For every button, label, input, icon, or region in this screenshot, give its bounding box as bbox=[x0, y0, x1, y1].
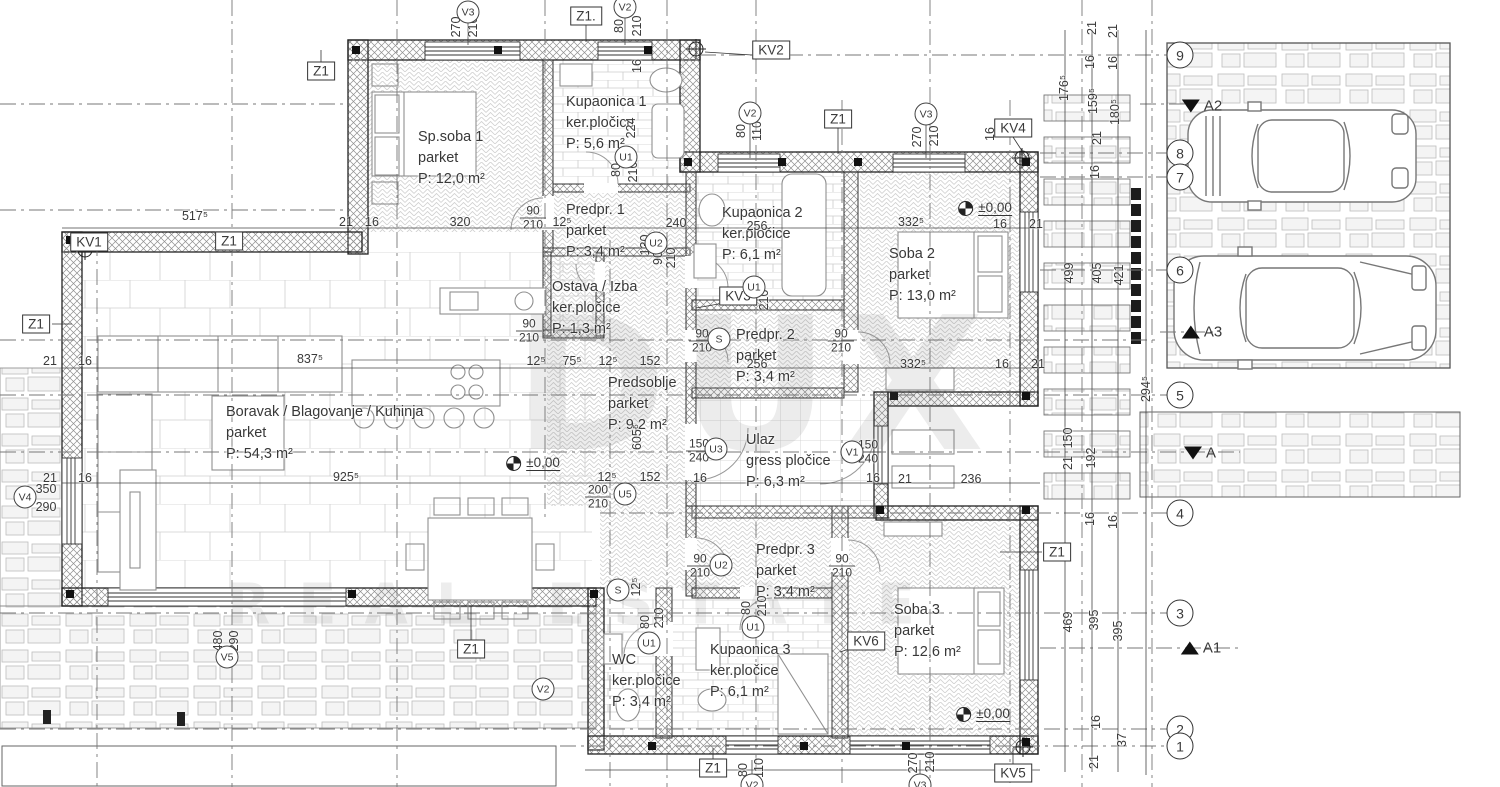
dimension-label: 16 bbox=[693, 471, 707, 485]
dimension-label-vertical: 80 bbox=[734, 124, 748, 138]
door-size-label: 90210 bbox=[828, 328, 854, 355]
opening-marker: V5 bbox=[216, 646, 239, 669]
dimension-label: 16 bbox=[995, 357, 1009, 371]
annotation-layer: Sp.soba 1parketP: 12,0 m²Kupaonica 1ker.… bbox=[0, 0, 1500, 787]
opening-marker: U3 bbox=[705, 438, 728, 461]
grid-axis-bubble: 9 bbox=[1167, 42, 1194, 69]
grid-axis-bubble: 8 bbox=[1167, 140, 1194, 167]
dimension-label: 16 bbox=[993, 217, 1007, 231]
room-area: P: 6,1 m² bbox=[722, 245, 803, 266]
dimension-label: 320 bbox=[450, 215, 471, 229]
dimension-label-vertical: 159⁵ bbox=[1086, 88, 1100, 114]
dimension-label-vertical: 80 bbox=[638, 615, 652, 629]
section-marker-a2: A2 bbox=[1182, 98, 1222, 115]
dimension-label: 236 bbox=[961, 472, 982, 486]
grid-axis-bubble: 1 bbox=[1167, 733, 1194, 760]
dimension-label: 332⁵ bbox=[900, 357, 926, 371]
opening-marker: U2 bbox=[710, 554, 733, 577]
level-marker: ±0,00 bbox=[956, 706, 1010, 722]
door-height: 210 bbox=[829, 567, 855, 580]
door-height: 210 bbox=[828, 342, 854, 355]
dimension-label-vertical: 21 bbox=[1090, 131, 1104, 145]
dimension-label-vertical: 210 bbox=[927, 126, 941, 147]
level-value: ±0,00 bbox=[978, 200, 1012, 216]
dimension-label-vertical: 16 bbox=[1088, 165, 1102, 179]
dimension-label: 16 bbox=[78, 471, 92, 485]
room-floor: gress pločice bbox=[746, 451, 831, 472]
room-name: Soba 2 bbox=[889, 244, 956, 265]
room-area: P: 12,0 m² bbox=[418, 169, 485, 190]
section-marker-a1: A1 bbox=[1181, 640, 1221, 657]
room-label-wc: WCker.pločiceP: 3,4 m² bbox=[612, 650, 681, 713]
dimension-label: 837⁵ bbox=[297, 352, 323, 366]
dimension-label-vertical: 270 bbox=[906, 753, 920, 774]
dimension-label: 75⁵ bbox=[562, 354, 581, 368]
dimension-label: 12⁵ bbox=[598, 354, 617, 368]
dimension-label-vertical: 210 bbox=[652, 608, 666, 629]
dimension-label: 21 bbox=[1029, 217, 1043, 231]
level-symbol-icon bbox=[958, 201, 973, 216]
opening-marker: U1 bbox=[615, 146, 638, 169]
room-label-soba-3: Soba 3parketP: 12,6 m² bbox=[894, 600, 961, 663]
room-floor: parket bbox=[418, 148, 485, 169]
dimension-label-vertical: 80 bbox=[739, 601, 753, 615]
room-label-soba-2: Soba 2parketP: 13,0 m² bbox=[889, 244, 956, 307]
floor-plan-canvas: DUX REAL ESTATE Sp.soba 1parketP: 12,0 m… bbox=[0, 0, 1500, 787]
opening-marker: U1 bbox=[742, 616, 765, 639]
section-marker-a3: A3 bbox=[1182, 324, 1222, 341]
wall-type-marker: KV4 bbox=[994, 119, 1032, 138]
room-area: P: 6,3 m² bbox=[746, 472, 831, 493]
room-floor: parket bbox=[226, 423, 424, 444]
opening-marker: V3 bbox=[457, 1, 480, 24]
dimension-label: 332⁵ bbox=[898, 215, 924, 229]
room-label-kupaonica-2: Kupaonica 2ker.pločiceP: 6,1 m² bbox=[722, 203, 803, 266]
dimension-label-vertical: 395 bbox=[1087, 610, 1101, 631]
dimension-label-vertical: 421 bbox=[1112, 265, 1126, 286]
opening-marker: V2 bbox=[739, 102, 762, 125]
dimension-label-vertical: 469 bbox=[1061, 612, 1075, 633]
room-name: Soba 3 bbox=[894, 600, 961, 621]
door-height: 210 bbox=[520, 219, 546, 232]
room-name: Predpr. 2 bbox=[736, 325, 795, 346]
room-label-kupaonica-3: Kupaonica 3ker.pločiceP: 6,1 m² bbox=[710, 640, 791, 703]
opening-marker: S bbox=[607, 579, 630, 602]
dimension-label-vertical: 210 bbox=[630, 16, 644, 37]
room-name: Predpr. 3 bbox=[756, 540, 815, 561]
wall-type-marker: KV1 bbox=[70, 233, 108, 252]
room-area: P: 3,4 m² bbox=[566, 242, 625, 263]
dimension-label: 256 bbox=[747, 357, 768, 371]
section-marker-a: A bbox=[1184, 445, 1216, 462]
section-triangle-icon bbox=[1182, 326, 1200, 339]
room-name: Ulaz bbox=[746, 430, 831, 451]
dimension-label-vertical: 180⁵ bbox=[1108, 99, 1122, 125]
room-floor: parket bbox=[894, 621, 961, 642]
section-label: A3 bbox=[1204, 324, 1222, 341]
wall-type-marker: Z1 bbox=[1043, 543, 1071, 562]
dimension-label-vertical: 605⁵ bbox=[630, 424, 644, 450]
room-name: Kupaonica 3 bbox=[710, 640, 791, 661]
room-area: P: 54,3 m² bbox=[226, 444, 424, 465]
dimension-label-vertical: 210 bbox=[664, 248, 678, 269]
wall-type-marker: Z1 bbox=[457, 640, 485, 659]
dimension-label-vertical: 405 bbox=[1090, 263, 1104, 284]
level-marker: ±0,00 bbox=[958, 200, 1012, 216]
room-area: P: 13,0 m² bbox=[889, 286, 956, 307]
wall-type-marker: Z1 bbox=[215, 232, 243, 251]
dimension-label: 240 bbox=[666, 216, 687, 230]
dimension-label-vertical: 270 bbox=[910, 127, 924, 148]
dimension-label-vertical: 176⁵ bbox=[1057, 75, 1071, 101]
section-triangle-icon bbox=[1182, 100, 1200, 113]
dimension-label: 12⁵ bbox=[552, 215, 571, 229]
dimension-label-vertical: 16 bbox=[1106, 56, 1120, 70]
dimension-label: 21 bbox=[898, 472, 912, 486]
dimension-label-vertical: 210 bbox=[923, 752, 937, 773]
dimension-label: 12⁵ bbox=[526, 354, 545, 368]
room-label-predpr-3: Predpr. 3parketP: 3,4 m² bbox=[756, 540, 815, 603]
dimension-label-vertical: 16 bbox=[630, 59, 644, 73]
level-symbol-icon bbox=[506, 456, 521, 471]
door-size-label: 200210 bbox=[585, 484, 611, 511]
door-size-label: 90210 bbox=[520, 205, 546, 232]
room-name: Predsoblje bbox=[608, 373, 677, 394]
wall-type-marker: Z1 bbox=[22, 315, 50, 334]
level-value: ±0,00 bbox=[976, 706, 1010, 722]
dimension-label-vertical: 499 bbox=[1062, 263, 1076, 284]
grid-axis-bubble: 6 bbox=[1167, 257, 1194, 284]
door-width: 90 bbox=[516, 318, 542, 332]
dimension-label: 152 bbox=[640, 354, 661, 368]
section-triangle-icon bbox=[1181, 642, 1199, 655]
grid-axis-bubble: 7 bbox=[1167, 164, 1194, 191]
section-label: A1 bbox=[1203, 640, 1221, 657]
dimension-label: 925⁵ bbox=[333, 470, 359, 484]
opening-marker: V3 bbox=[909, 774, 932, 787]
room-area: P: 3,4 m² bbox=[612, 692, 681, 713]
room-name: Kupaonica 1 bbox=[566, 92, 647, 113]
dimension-label-vertical: 16 bbox=[1106, 515, 1120, 529]
dimension-label-vertical: 294⁵ bbox=[1139, 376, 1153, 402]
dimension-label: 517⁵ bbox=[182, 209, 208, 223]
opening-marker: V3 bbox=[915, 103, 938, 126]
opening-marker: V2 bbox=[532, 678, 555, 701]
dimension-label-vertical: 150 bbox=[1061, 428, 1075, 449]
dimension-label-vertical: 16 bbox=[1083, 512, 1097, 526]
dimension-label-vertical: 21 bbox=[1061, 456, 1075, 470]
dimension-label-vertical: 192 bbox=[1084, 448, 1098, 469]
level-value: ±0,00 bbox=[526, 455, 560, 471]
wall-type-marker: KV6 bbox=[847, 632, 885, 651]
dimension-label-vertical: 16 bbox=[1083, 55, 1097, 69]
room-area: P: 6,1 m² bbox=[710, 682, 791, 703]
door-height: 210 bbox=[585, 498, 611, 511]
dimension-label-vertical: 395 bbox=[1111, 621, 1125, 642]
opening-marker: U5 bbox=[614, 483, 637, 506]
room-label-predpr-1: Predpr. 1parketP: 3,4 m² bbox=[566, 200, 625, 263]
dimension-label-vertical: 21 bbox=[1087, 755, 1101, 769]
room-name: Boravak / Blagovanje / Kuhinja bbox=[226, 402, 424, 423]
room-name: Predpr. 1 bbox=[566, 200, 625, 221]
room-floor: parket bbox=[889, 265, 956, 286]
door-size-label: 90210 bbox=[829, 553, 855, 580]
dimension-label-vertical: 21 bbox=[1106, 24, 1120, 38]
dimension-label-vertical: 210 bbox=[755, 596, 769, 617]
wall-type-marker: Z1 bbox=[307, 62, 335, 81]
opening-marker: S bbox=[708, 328, 731, 351]
opening-marker: V1 bbox=[841, 441, 864, 464]
dimension-label-vertical: 12⁵ bbox=[629, 577, 643, 596]
dimension-label: 290 bbox=[36, 500, 57, 514]
wall-type-marker: Z1 bbox=[824, 110, 852, 129]
wall-type-marker: KV5 bbox=[994, 764, 1032, 783]
room-name: Sp.soba 1 bbox=[418, 127, 485, 148]
room-floor: parket bbox=[608, 394, 677, 415]
dimension-label: 256 bbox=[747, 219, 768, 233]
dimension-label: 21 bbox=[43, 354, 57, 368]
room-floor: ker.pločice bbox=[710, 661, 791, 682]
dimension-label: 21 bbox=[1031, 357, 1045, 371]
opening-marker: U2 bbox=[645, 232, 668, 255]
dimension-label: 16 bbox=[866, 471, 880, 485]
room-area: P: 1,3 m² bbox=[552, 319, 637, 340]
wall-type-marker: KV2 bbox=[752, 41, 790, 60]
wall-type-marker: Z1 bbox=[699, 759, 727, 778]
door-width: 90 bbox=[520, 205, 546, 219]
room-label-sp-soba-1: Sp.soba 1parketP: 12,0 m² bbox=[418, 127, 485, 190]
opening-marker: U1 bbox=[743, 276, 766, 299]
grid-axis-bubble: 4 bbox=[1167, 500, 1194, 527]
dimension-label-vertical: 37 bbox=[1115, 733, 1129, 747]
dimension-label-vertical: 16 bbox=[1089, 715, 1103, 729]
room-floor: ker.pločice bbox=[552, 298, 637, 319]
door-width: 200 bbox=[585, 484, 611, 498]
dimension-label: 350 bbox=[36, 482, 57, 496]
room-name: Ostava / Izba bbox=[552, 277, 637, 298]
grid-axis-bubble: 3 bbox=[1167, 600, 1194, 627]
level-marker: ±0,00 bbox=[506, 455, 560, 471]
dimension-label: 21 bbox=[339, 215, 353, 229]
dimension-label-vertical: 21 bbox=[1085, 21, 1099, 35]
room-area: P: 12,6 m² bbox=[894, 642, 961, 663]
door-size-label: 90210 bbox=[516, 318, 542, 345]
section-label: A bbox=[1206, 445, 1216, 462]
wall-type-marker: Z1. bbox=[570, 7, 602, 26]
room-label-ulaz: Ulazgress pločiceP: 6,3 m² bbox=[746, 430, 831, 493]
grid-axis-bubble: 5 bbox=[1167, 382, 1194, 409]
room-floor: ker.pločice bbox=[612, 671, 681, 692]
room-floor: parket bbox=[756, 561, 815, 582]
room-label-boravak: Boravak / Blagovanje / KuhinjaparketP: 5… bbox=[226, 402, 424, 465]
dimension-label: 16 bbox=[365, 215, 379, 229]
dimension-label-vertical: 80 bbox=[612, 19, 626, 33]
section-triangle-icon bbox=[1184, 447, 1202, 460]
door-height: 210 bbox=[516, 332, 542, 345]
room-floor: parket bbox=[566, 221, 625, 242]
level-symbol-icon bbox=[956, 707, 971, 722]
room-label-ostava-izba: Ostava / Izbaker.pločiceP: 1,3 m² bbox=[552, 277, 637, 340]
door-width: 90 bbox=[828, 328, 854, 342]
dimension-label-vertical: 224 bbox=[624, 118, 638, 139]
dimension-label: 16 bbox=[78, 354, 92, 368]
door-width: 90 bbox=[829, 553, 855, 567]
opening-marker: V4 bbox=[14, 486, 37, 509]
opening-marker: U1 bbox=[638, 632, 661, 655]
dimension-label: 152 bbox=[640, 470, 661, 484]
section-label: A2 bbox=[1204, 98, 1222, 115]
